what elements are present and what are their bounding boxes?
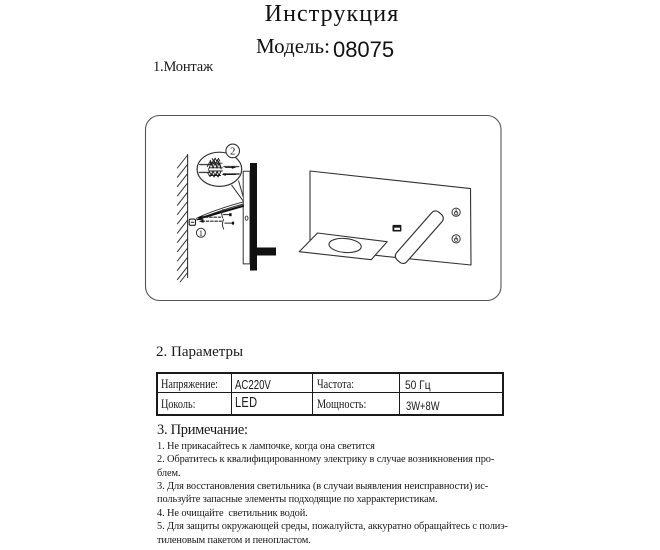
svg-text:2: 2	[230, 147, 235, 158]
svg-text:1: 1	[199, 229, 203, 238]
